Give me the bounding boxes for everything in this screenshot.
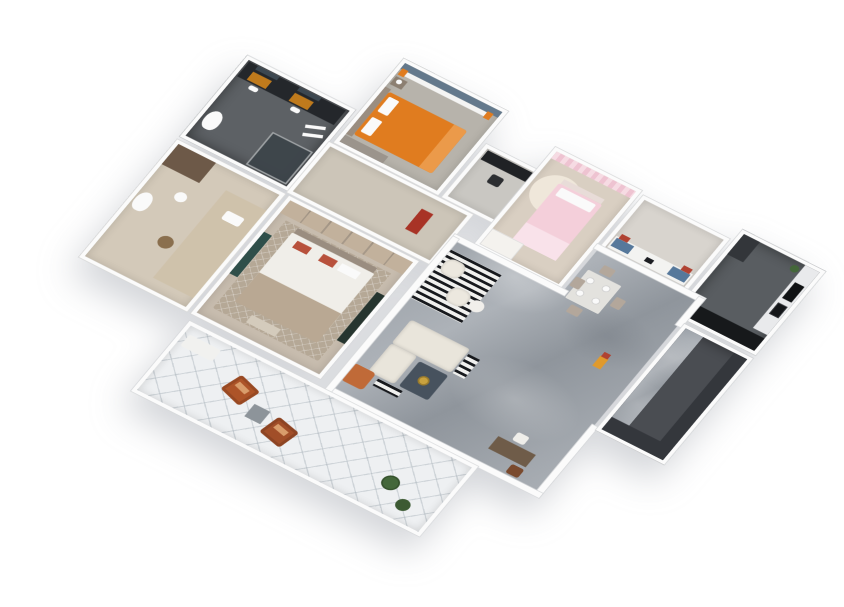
canvas-white-background (0, 0, 844, 607)
towel (305, 124, 326, 130)
apartment-floor-plan (11, 2, 826, 607)
cube-side-table (244, 404, 270, 424)
red-accent-cabinet (405, 209, 433, 235)
dining-chair (609, 297, 626, 311)
tall-cabinet (727, 234, 760, 262)
toilet (128, 190, 156, 214)
woven-stool (154, 233, 177, 251)
pedestal-sink (172, 190, 190, 204)
floorplan-scene (0, 0, 844, 607)
towel (302, 133, 323, 139)
potted-plant (392, 497, 413, 514)
white-bench (180, 334, 221, 361)
dining-chair (566, 304, 584, 317)
potted-plant (377, 473, 403, 493)
desk-chair (486, 174, 505, 188)
toilet (198, 108, 226, 132)
writing-desk (488, 436, 536, 467)
